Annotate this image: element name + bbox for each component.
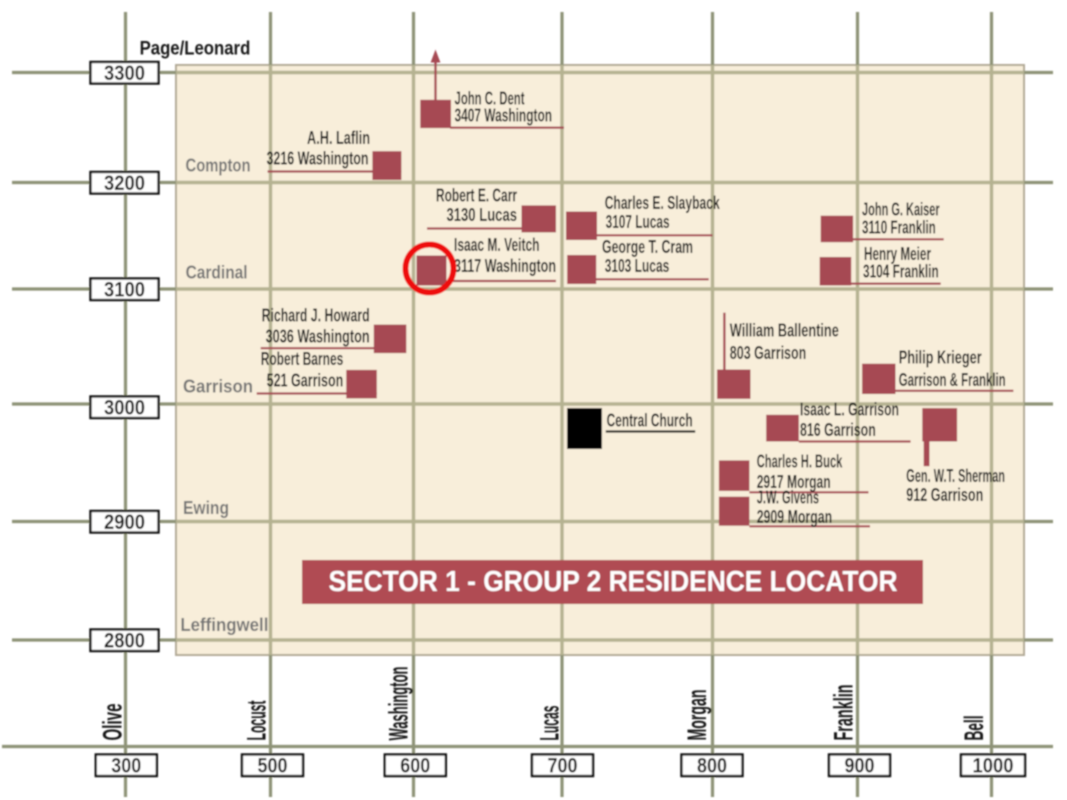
svg-text:3117 Washington: 3117 Washington [454,256,556,276]
svg-text:A.H. Laflin: A.H. Laflin [307,128,370,148]
svg-text:3130 Lucas: 3130 Lucas [447,205,518,225]
svg-text:J.W. Givens: J.W. Givens [757,487,819,507]
svg-text:Charles E. Slayback: Charles E. Slayback [605,193,721,213]
svg-text:George T. Cram: George T. Cram [602,237,693,257]
svg-text:Compton: Compton [186,156,251,176]
svg-text:Leffingwell: Leffingwell [180,615,268,635]
svg-text:Isaac M. Veitch: Isaac M. Veitch [454,235,540,255]
svg-text:3407 Washington: 3407 Washington [455,106,553,126]
svg-text:Bell: Bell [959,716,989,741]
svg-text:3110 Franklin: 3110 Franklin [862,217,936,237]
svg-text:Morgan: Morgan [682,690,712,741]
svg-text:816 Garrison: 816 Garrison [800,420,876,440]
svg-text:900: 900 [845,755,875,778]
svg-text:3216 Washington: 3216 Washington [267,149,369,169]
svg-text:Franklin: Franklin [829,685,859,741]
svg-text:600: 600 [400,755,430,778]
svg-text:2909 Morgan: 2909 Morgan [757,507,833,527]
svg-text:2900: 2900 [104,511,145,534]
svg-text:Cardinal: Cardinal [186,263,248,283]
svg-text:Philip Krieger: Philip Krieger [899,348,982,368]
svg-text:3036 Washington: 3036 Washington [266,326,370,346]
svg-text:Lucas: Lucas [535,706,565,741]
svg-text:Ewing: Ewing [183,498,229,518]
svg-text:3300: 3300 [104,62,145,85]
svg-text:Page/Leonard: Page/Leonard [140,38,251,60]
svg-text:3000: 3000 [104,397,145,420]
svg-text:3100: 3100 [104,279,145,302]
svg-text:521 Garrison: 521 Garrison [267,371,344,391]
svg-text:500: 500 [258,755,288,778]
svg-text:Garrison & Franklin: Garrison & Franklin [899,370,1006,390]
svg-text:Charles H. Buck: Charles H. Buck [757,452,843,472]
svg-text:3200: 3200 [104,172,145,195]
svg-text:912 Garrison: 912 Garrison [906,485,983,505]
svg-text:Richard J. Howard: Richard J. Howard [262,306,370,326]
svg-text:Central Church: Central Church [607,410,693,430]
svg-text:William Ballentine: William Ballentine [730,321,839,341]
svg-text:3104 Franklin: 3104 Franklin [863,262,939,282]
svg-text:Robert E. Carr: Robert E. Carr [436,186,517,206]
svg-text:Isaac L. Garrison: Isaac L. Garrison [800,400,899,420]
svg-text:803 Garrison: 803 Garrison [730,343,807,363]
svg-text:1000: 1000 [973,755,1014,778]
svg-text:Gen. W.T. Sherman: Gen. W.T. Sherman [906,466,1005,486]
svg-text:300: 300 [111,755,141,778]
svg-text:700: 700 [548,755,578,778]
svg-text:Locust: Locust [242,701,272,741]
svg-text:3107 Lucas: 3107 Lucas [606,212,670,232]
svg-text:Robert Barnes: Robert Barnes [261,349,344,369]
svg-text:Olive: Olive [98,704,128,741]
svg-text:Garrison: Garrison [183,377,253,397]
svg-text:3103 Lucas: 3103 Lucas [605,256,670,276]
svg-text:SECTOR 1 - GROUP 2 RESIDENCE L: SECTOR 1 - GROUP 2 RESIDENCE LOCATOR [329,566,898,598]
svg-text:Washington: Washington [384,667,414,741]
svg-text:2800: 2800 [104,630,145,653]
svg-text:800: 800 [697,755,727,778]
